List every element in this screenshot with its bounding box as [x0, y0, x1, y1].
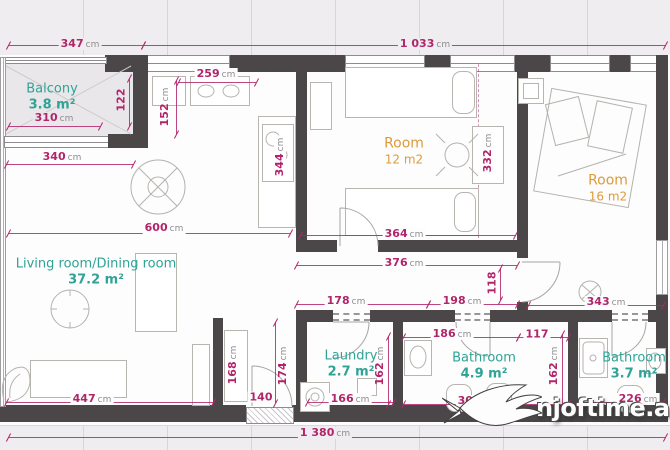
dimension-tick	[426, 300, 431, 308]
watermark-text: njoftime.al	[536, 394, 670, 422]
dimension-unit: cm	[550, 347, 560, 361]
dimension-tick	[498, 296, 503, 304]
dimension-entry-height: 174cm	[277, 345, 289, 388]
window	[630, 55, 658, 72]
dimension-tick	[516, 333, 521, 341]
dimension-living-width: 600cm	[143, 222, 186, 234]
dimension-line-bathroom-left-width	[403, 337, 518, 338]
door-arc-laundry	[333, 322, 369, 358]
balcony-floor	[4, 64, 133, 138]
dimension-value: 117	[526, 328, 549, 341]
door-threshold	[455, 313, 490, 321]
background-top-strip	[0, 0, 670, 55]
dimension-entry-door-width: 140	[248, 392, 275, 403]
dimension-value: 376	[385, 256, 408, 269]
dimension-tick	[498, 264, 503, 272]
fixture-bathroom-sink	[646, 348, 666, 374]
wall-segment	[296, 55, 307, 240]
dimension-value: 186	[433, 327, 456, 340]
room-label-room12: Room12 m2	[384, 135, 424, 166]
dimension-tick	[288, 229, 293, 237]
dimension-tick	[560, 330, 565, 338]
dimension-line-living-bottom-width	[6, 402, 213, 403]
dimension-tick	[273, 318, 278, 326]
dimension-value: 162	[547, 362, 560, 385]
fixture-bathroom-sink	[404, 340, 432, 376]
dimension-unit: cm	[68, 153, 82, 163]
room-label-bathroom-left: Bathroom4.9 m²	[452, 350, 516, 381]
dimension-tick	[6, 229, 11, 237]
door-arc-room16	[522, 262, 560, 302]
wall-segment	[296, 310, 333, 322]
dimension-value: 178	[327, 294, 350, 307]
dimension-unit: cm	[170, 224, 184, 234]
dimension-tick	[516, 333, 521, 341]
bird-swallow-icon	[442, 384, 542, 432]
wall-segment	[378, 240, 517, 252]
dimension-line-living-top-width	[6, 164, 133, 165]
entry-doormat	[246, 407, 294, 424]
floor-plan: 347cm1 033cm259cm122152cm310cm340cm344cm…	[0, 0, 670, 450]
dimension-line-laundry-height	[388, 336, 389, 404]
furniture-cabinet	[135, 253, 177, 332]
door-threshold	[333, 313, 370, 321]
wall-segment	[296, 240, 337, 252]
door-arc-entry	[252, 366, 292, 406]
ceiling-light-icon	[579, 281, 601, 303]
dimension-tick	[426, 300, 431, 308]
furniture-pillow	[452, 71, 475, 114]
room-name: Room	[588, 172, 628, 189]
wall-segment	[610, 55, 630, 72]
dimension-line-hall-right	[428, 304, 517, 305]
dimension-tick	[174, 130, 179, 138]
furniture-chair	[445, 143, 469, 167]
furniture-fridge	[152, 76, 186, 106]
dimension-line-entry-height	[275, 322, 276, 403]
fixture-laundry-sink	[357, 378, 377, 396]
balcony-railing	[0, 57, 107, 64]
door-threshold	[612, 313, 648, 321]
dimension-tick	[294, 300, 299, 308]
dimension-tick	[386, 332, 391, 340]
dimension-line-hall-room16	[528, 305, 663, 306]
dimension-tick	[515, 261, 520, 269]
dimension-value: 340	[43, 150, 66, 163]
watermark: njoftime.al	[536, 394, 670, 422]
dimension-value: 600	[145, 221, 168, 234]
dimension-unit: cm	[468, 297, 482, 307]
dimension-line-hall-left	[296, 304, 428, 305]
furniture-closet	[224, 330, 248, 402]
furniture-round-table	[51, 290, 89, 328]
furniture-stove	[262, 124, 294, 182]
room-area: 16 m2	[588, 189, 628, 203]
dimension-corridor-jog: 118	[487, 270, 498, 297]
furniture-pillow	[454, 192, 476, 232]
wall-segment	[490, 310, 612, 322]
dimension-line-living-width	[8, 233, 290, 234]
wall-segment	[393, 322, 403, 422]
room-area: 12 m2	[384, 152, 424, 166]
room-label-room16: Room16 m2	[588, 172, 628, 203]
dimension-value: 152	[158, 103, 171, 126]
plant	[2, 367, 30, 402]
furniture-double-bed	[534, 88, 647, 207]
wall-segment	[370, 310, 455, 322]
door-arc-bathroom-left	[456, 322, 490, 356]
dimension-unit: cm	[352, 297, 366, 307]
wall-segment	[213, 318, 223, 405]
dimension-line-corridor-jog	[500, 268, 501, 300]
dimension-hall-left: 178cm	[325, 295, 368, 307]
furniture-dining-table	[131, 160, 185, 214]
wall-segment	[230, 55, 345, 72]
room-label-laundry: Laundry2.7 m²	[325, 348, 378, 379]
window	[145, 55, 230, 72]
window	[656, 240, 668, 295]
window-wall-left	[0, 57, 6, 407]
dimension-unit: cm	[458, 330, 472, 340]
dimension-tick	[254, 78, 259, 86]
room-area: 4.9 m²	[452, 366, 516, 382]
window	[550, 55, 610, 72]
background-bottom-strip	[0, 425, 670, 450]
dimension-corridor-width: 376cm	[383, 257, 426, 269]
furniture-desk	[472, 126, 504, 184]
dimension-line-corridor-width	[296, 265, 517, 266]
dimension-value: 118	[486, 272, 499, 295]
dimension-bathroom-height: 162cm	[548, 345, 560, 388]
dimension-unit: cm	[376, 347, 386, 361]
fixture-washing-machine	[300, 382, 330, 412]
furniture-sofa	[30, 360, 127, 398]
wall-segment	[108, 134, 148, 148]
room-name: Room	[384, 135, 424, 152]
dimension-living-top-width: 340cm	[41, 151, 84, 163]
room-name: Bathroom	[452, 350, 516, 366]
dimension-tick	[131, 160, 136, 168]
dimension-line-bathroom-left-extra	[518, 337, 568, 338]
dimension-unit: cm	[356, 395, 370, 405]
dimension-unit: cm	[410, 259, 424, 269]
dimension-value: 198	[443, 294, 466, 307]
dimension-hall-right: 198cm	[441, 295, 484, 307]
furniture-nightstand-top	[523, 83, 539, 99]
dimension-bathroom-left-width: 186cm	[431, 328, 474, 340]
furniture-wardrobe	[310, 82, 332, 130]
dimension-unit: cm	[279, 347, 289, 361]
door-arc-bathroom-right	[612, 322, 646, 356]
furniture-shelf	[192, 344, 210, 406]
fixture-shower	[579, 338, 608, 378]
dimension-value: 166	[331, 392, 354, 405]
dimension-value: 140	[250, 391, 273, 404]
dimension-bathroom-left-extra: 117	[524, 329, 551, 340]
dimension-hall-room16: 343cm	[585, 296, 628, 308]
dimension-value: 343	[587, 295, 610, 308]
wall-segment	[0, 405, 246, 422]
furniture-kitchen-sink-unit	[190, 76, 250, 106]
room-name: Laundry	[325, 348, 378, 364]
dimension-unit: cm	[612, 298, 626, 308]
wall-segment	[648, 310, 668, 322]
dimension-tick	[294, 261, 299, 269]
dimension-value: 174	[276, 362, 289, 385]
wall-segment	[656, 55, 668, 240]
